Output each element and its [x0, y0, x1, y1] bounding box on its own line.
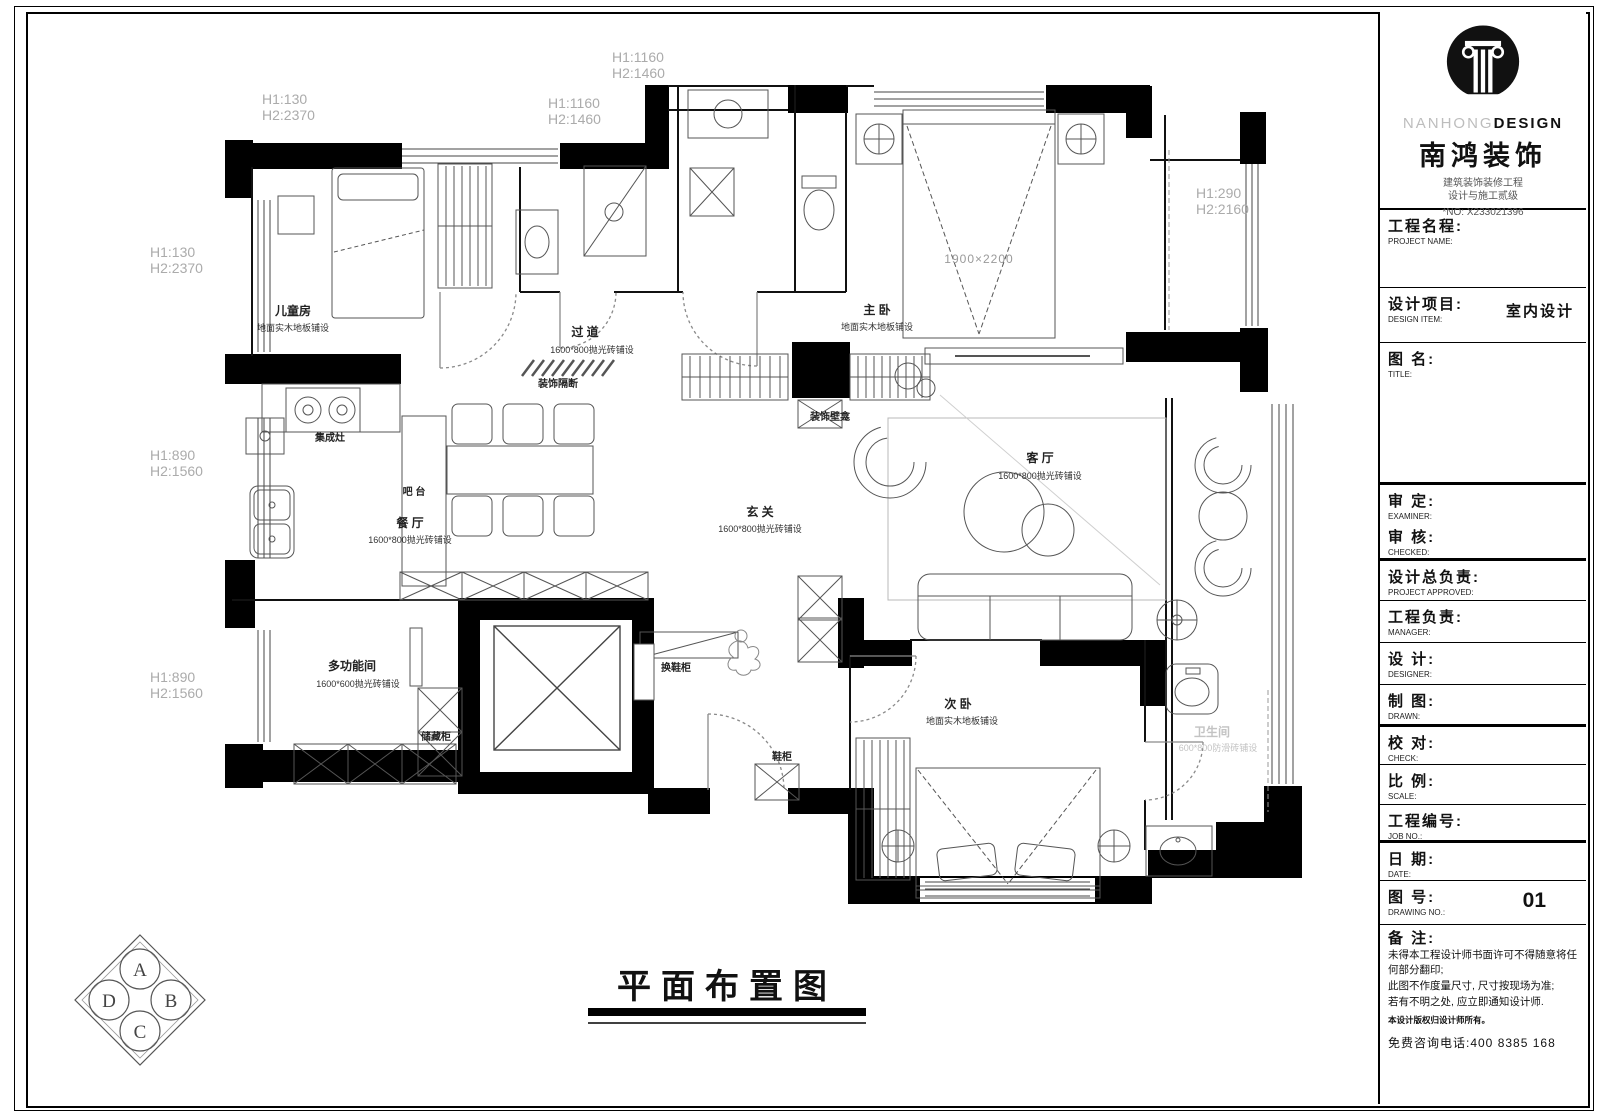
scale-cn: 比 例: [1388, 770, 1578, 791]
tb-row-designer: 设 计: DESIGNER: [1380, 643, 1586, 685]
checked-cn: 审 核: [1388, 526, 1578, 547]
remark-copyright: 本设计版权归设计师所有。 [1388, 1013, 1578, 1028]
drawing-no-cn: 图 号: [1388, 886, 1578, 907]
room-corridor-material: 1600*800抛光砖铺设 [550, 344, 634, 355]
manager-en: MANAGER: [1388, 628, 1578, 637]
dim-5-l2: H2:1560 [150, 463, 203, 479]
brand-cn: 南鸿装饰 [1380, 134, 1586, 173]
floor-plan: 儿童房 地面实木地板铺设 过 道 1600*800抛光砖铺设 主 卧 地面实木地… [26, 12, 1378, 1104]
cert-lines: 建筑装饰装修工程 设计与施工贰级 [1380, 177, 1586, 203]
partition-label: 装饰隔断 [537, 377, 578, 390]
title-block: NANHONGDESIGN 南鸿装饰 建筑装饰装修工程 设计与施工贰级 *NO:… [1378, 12, 1586, 1104]
shoe-change-label: 换鞋柜 [661, 661, 691, 674]
blueprint-page: 儿童房 地面实木地板铺设 过 道 1600*800抛光砖铺设 主 卧 地面实木地… [0, 0, 1600, 1119]
room-master-material: 地面实木地板铺设 [841, 321, 913, 332]
partition-hatch [522, 360, 614, 376]
dim-0-l2: H2:2370 [262, 107, 315, 123]
room-foyer-material: 1600*800抛光砖铺设 [718, 523, 802, 534]
remark-line-2: 此图不作度量尺寸, 尺寸按现场为准; [1388, 979, 1578, 994]
room-living-label: 客 厅 [1025, 450, 1053, 465]
room-foyer-label: 玄 关 [746, 504, 773, 519]
check-en: CHECK: [1388, 754, 1578, 763]
room-living-material: 1600*800抛光砖铺设 [998, 470, 1082, 481]
dim-5-l1: H1:890 [150, 447, 195, 463]
drawing-title-en: TITLE: [1388, 370, 1578, 379]
room-multi-material: 1600*600抛光砖铺设 [316, 678, 400, 689]
sheet-title-text: 平面布置图 [617, 968, 837, 1006]
room-second-label: 次 卧 [944, 696, 971, 711]
project-approved-cn: 设计总负责: [1388, 566, 1578, 587]
tb-row-examiner: 审 定: EXAMINER: [1380, 483, 1586, 521]
job-no-cn: 工程编号: [1388, 810, 1578, 831]
kitchen-dining-furniture [246, 384, 594, 586]
examiner-cn: 审 定: [1388, 490, 1578, 511]
tb-row-check: 校 对: CHECK: [1380, 725, 1586, 765]
tb-row-checked: 审 核: CHECKED: [1380, 521, 1586, 559]
room-second-material: 地面实木地板铺设 [926, 715, 998, 726]
compass-c: C [134, 1022, 147, 1043]
room-master-label: 主 卧 [863, 302, 890, 317]
drawing-title-cn: 图 名: [1388, 348, 1578, 369]
room-corridor-label: 过 道 [571, 324, 598, 339]
tb-row-date: 日 期: DATE: [1380, 841, 1586, 881]
remark-line-3: 若有不明之处, 应立即通知设计师. [1388, 995, 1578, 1010]
room-dining-label: 餐 厅 [396, 515, 423, 530]
tb-row-design-item: 设计项目: DESIGN ITEM: 室内设计 [1380, 288, 1586, 343]
dim-4-l2: H2:2160 [1196, 201, 1249, 217]
stove-label: 集成灶 [314, 431, 345, 444]
cert-line2: 设计与施工贰级 [1380, 190, 1586, 203]
bed-size-label: 1900×2200 [944, 252, 1013, 266]
date-cn: 日 期: [1388, 848, 1578, 869]
examiner-en: EXAMINER: [1388, 512, 1578, 521]
tb-row-drawing-title: 图 名: TITLE: [1380, 343, 1586, 483]
brand-en-bold: DESIGN [1494, 115, 1564, 132]
remark-cn: 备 注: [1388, 931, 1578, 946]
project-name-cn: 工程名程: [1388, 215, 1578, 236]
room-kids-label: 儿童房 [274, 303, 311, 318]
date-en: DATE: [1388, 870, 1578, 879]
project-approved-en: PROJECT APPROVED: [1388, 588, 1578, 597]
brand-en: NANHONGDESIGN [1380, 115, 1586, 132]
room-kids-material: 地面实木地板铺设 [257, 322, 329, 333]
second-bedroom-furniture [856, 738, 1130, 898]
remark-line-1: 未得本工程设计师书面许可不得随意将任何部分翻印; [1388, 948, 1578, 978]
tb-row-job-no: 工程编号: JOB NO.: [1380, 805, 1586, 841]
storage-label: 储藏柜 [420, 730, 451, 743]
dim-1-l1: H1:1160 [612, 49, 664, 65]
dim-6-l1: H1:890 [150, 669, 195, 685]
drawing-no-en: DRAWING NO.: [1388, 908, 1578, 917]
check-cn: 校 对: [1388, 732, 1578, 753]
job-no-en: JOB NO.: [1388, 832, 1578, 841]
brand-en-light: NANHONG [1403, 115, 1494, 132]
bar-label: 吧 台 [403, 485, 426, 498]
cert-line1: 建筑装饰装修工程 [1380, 177, 1586, 190]
entry-furniture [640, 576, 842, 800]
dim-2-l2: H2:1460 [548, 111, 601, 127]
compass-b: B [165, 991, 178, 1012]
remark-hotline: 免费咨询电话:400 8385 168 [1388, 1036, 1578, 1051]
tb-row-project-approved: 设计总负责: PROJECT APPROVED: [1380, 559, 1586, 601]
dim-0-l1: H1:130 [262, 91, 307, 107]
room-bath-label: 卫生间 [1194, 724, 1230, 739]
company-logo-icon [1440, 22, 1526, 108]
tb-row-drawn: 制 图: DRAWN: [1380, 685, 1586, 725]
shoe-cabinet-label: 鞋柜 [772, 750, 792, 763]
dim-3-l2: H2:2370 [150, 260, 203, 276]
master-bedroom-furniture [682, 110, 1123, 428]
tb-row-drawing-no: 图 号: DRAWING NO.: 01 [1380, 881, 1586, 925]
room-multi-label: 多功能间 [328, 658, 376, 673]
drawn-cn: 制 图: [1388, 690, 1578, 711]
tb-row-manager: 工程负责: MANAGER: [1380, 601, 1586, 643]
living-room-furniture [854, 395, 1197, 640]
tb-row-scale: 比 例: SCALE: [1380, 765, 1586, 805]
balcony-furniture [1195, 437, 1251, 596]
checked-en: CHECKED: [1388, 548, 1578, 557]
walls [225, 85, 1302, 904]
room-dining-material: 1600*800抛光砖铺设 [368, 534, 452, 545]
drawn-en: DRAWN: [1388, 712, 1578, 721]
tb-row-project-name: 工程名程: PROJECT NAME: [1380, 210, 1586, 288]
room-labels: 儿童房 地面实木地板铺设 过 道 1600*800抛光砖铺设 主 卧 地面实木地… [257, 302, 1257, 753]
design-item-value: 室内设计 [1506, 300, 1574, 321]
room-bath-material: 600*800防滑砖铺设 [1179, 742, 1258, 753]
designer-cn: 设 计: [1388, 648, 1578, 669]
designer-en: DESIGNER: [1388, 670, 1578, 679]
kids-room-furniture [278, 164, 492, 318]
dim-2-l1: H1:1160 [548, 95, 600, 111]
drawing-no-value: 01 [1523, 889, 1546, 913]
dim-6-l2: H2:1560 [150, 685, 203, 701]
scale-en: SCALE: [1388, 792, 1578, 801]
dim-1-l2: H2:1460 [612, 65, 665, 81]
compass-rose: A B C D [75, 935, 205, 1065]
compass-a: A [133, 960, 147, 981]
manager-cn: 工程负责: [1388, 606, 1578, 627]
niche-label: 装饰壁龛 [809, 410, 851, 423]
project-name-en: PROJECT NAME: [1388, 237, 1578, 246]
tb-row-remark: 备 注: 未得本工程设计师书面许可不得随意将任何部分翻印; 此图不作度量尺寸, … [1380, 925, 1586, 1104]
compass-d: D [102, 991, 116, 1012]
dim-3-l1: H1:130 [150, 244, 195, 260]
person-figure [728, 630, 760, 675]
sheet-title: 平面布置图 [588, 968, 866, 1023]
dim-4-l1: H1:290 [1196, 185, 1241, 201]
company-logo-cell: NANHONGDESIGN 南鸿装饰 建筑装饰装修工程 设计与施工贰级 *NO:… [1380, 12, 1586, 210]
